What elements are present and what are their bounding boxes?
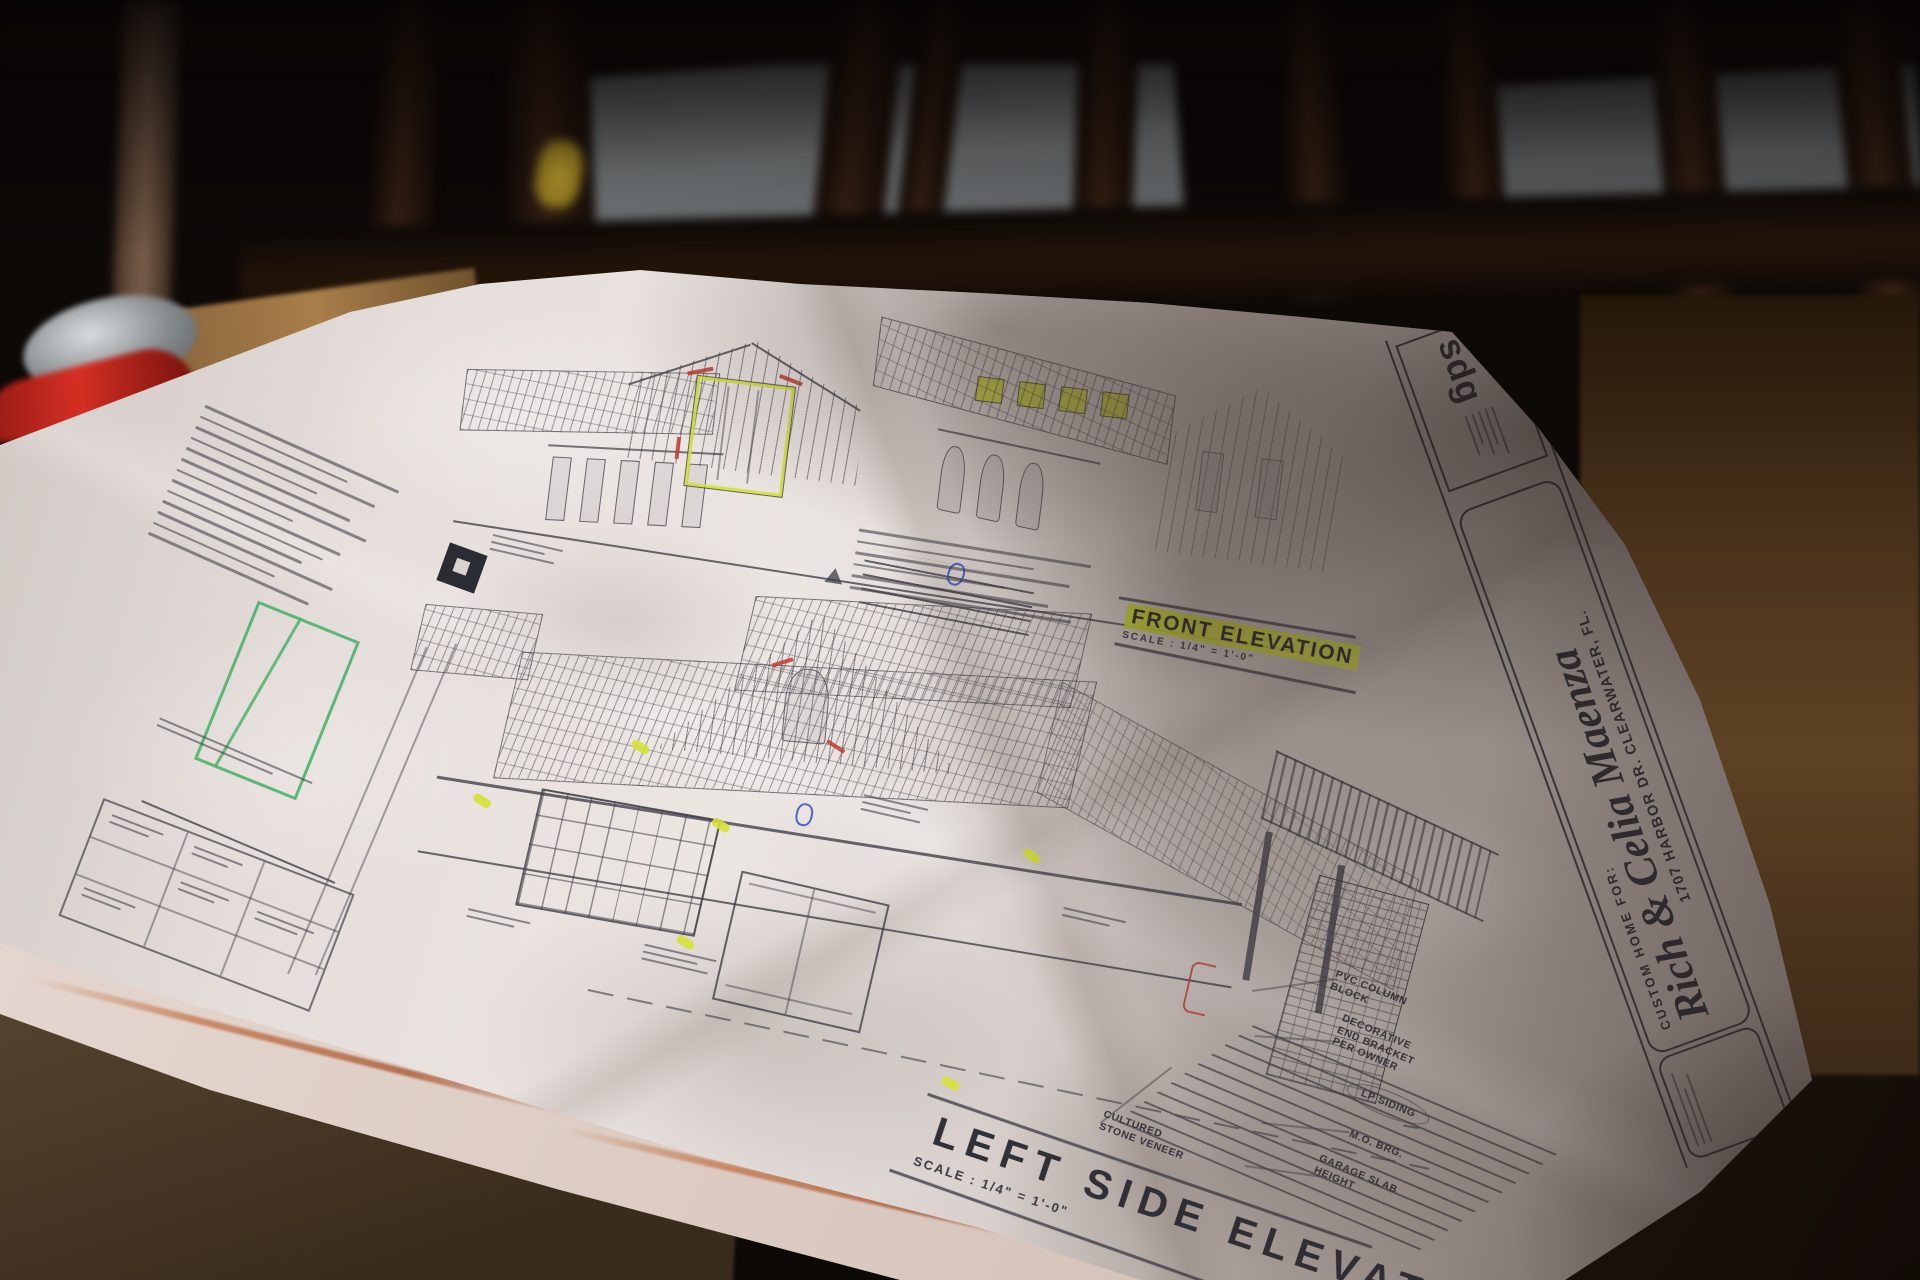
logo-address-lines [1460,407,1511,470]
wall-stud [113,0,182,311]
notes-column [144,405,415,636]
roof-hatch [873,317,1176,465]
blue-check-mark [793,802,815,828]
revision-delta-icon [824,558,846,585]
right-wing-wall [927,428,1100,556]
garage-door [515,788,721,937]
door-highlight [684,376,795,497]
red-revision-cloud [1181,960,1216,1016]
roof-hatch [410,604,543,681]
photo: FRONT ELEVATION SCALE : 1/4" = 1'-0" [0,0,1920,1280]
right-gable [1152,377,1352,573]
double-door [712,871,890,1034]
